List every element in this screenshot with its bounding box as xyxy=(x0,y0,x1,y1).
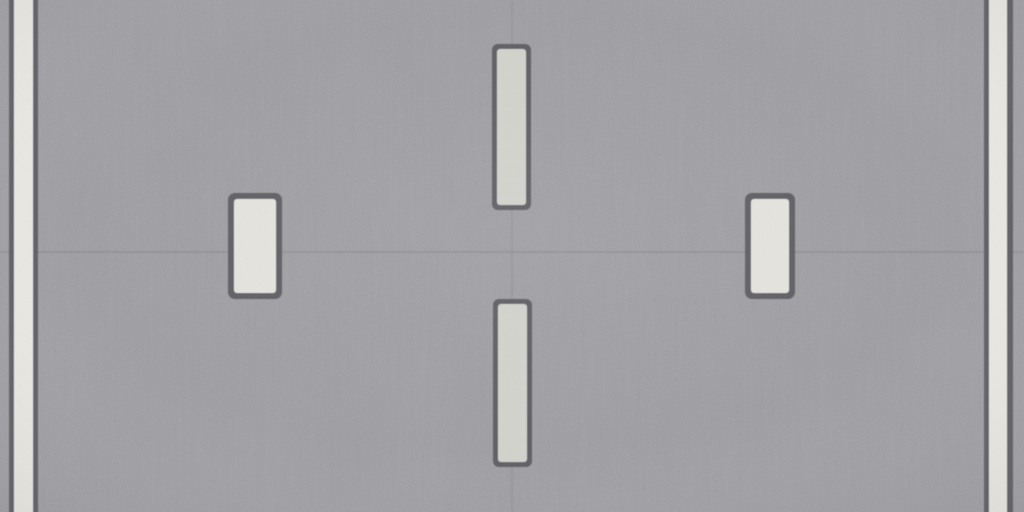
road-surface xyxy=(0,0,1024,512)
road-scene xyxy=(0,0,1024,512)
vignette-overlay xyxy=(0,0,1024,512)
